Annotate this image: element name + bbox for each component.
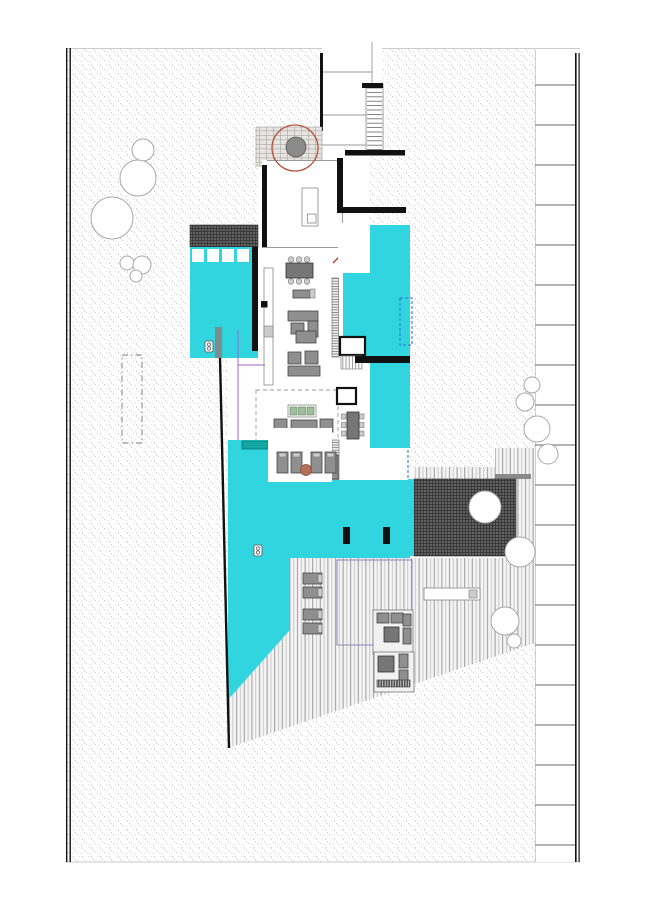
outdoor-dining-chair <box>342 414 347 419</box>
structural-column <box>261 301 268 308</box>
dining-chair <box>296 279 302 285</box>
set-b-table <box>378 656 394 672</box>
gravel-court <box>414 479 516 556</box>
outdoor-dining-chair <box>360 414 365 419</box>
mid-cross-wall <box>340 207 406 213</box>
set-a-seat-3 <box>403 614 411 626</box>
pool-skylight-1 <box>192 249 204 262</box>
set-a-coffee-table <box>384 627 399 642</box>
planter-box <box>337 388 356 404</box>
outdoor-dining-chair <box>360 423 365 428</box>
tree-east-1 <box>524 377 540 393</box>
north-wall-line <box>320 53 323 131</box>
tree-deck-2 <box>507 634 521 648</box>
terrace-pool-east <box>330 480 410 558</box>
pool-marker-2 <box>383 527 390 544</box>
outdoor-dining-chair <box>360 431 365 436</box>
tree-west-4 <box>120 256 134 270</box>
pool-marker-1 <box>343 527 350 544</box>
east-site-line-inner <box>575 53 577 862</box>
pool-skylight-4 <box>237 249 249 262</box>
pool-skylight-2 <box>207 249 219 262</box>
sofa-1-seat <box>288 311 318 321</box>
dining-chair <box>304 257 310 263</box>
hall-floor <box>343 156 370 208</box>
lounger-pillow <box>327 453 334 457</box>
stipple-top-block <box>165 48 322 130</box>
console-cell <box>299 407 306 415</box>
court-tree <box>286 137 306 157</box>
tv-bench <box>293 290 310 298</box>
pool-lane-marker <box>215 327 222 358</box>
console-cell <box>307 407 314 415</box>
tree-gravel-1 <box>469 491 501 523</box>
terrace-notch <box>338 223 370 273</box>
stipple-right-upper <box>370 155 535 225</box>
pool-step-bench <box>242 441 268 449</box>
tree-west-3 <box>91 197 133 239</box>
site-plan-drawing <box>0 0 650 912</box>
stipple-mid-left <box>165 358 228 862</box>
tree-east-3 <box>524 416 550 442</box>
stair-landing <box>340 337 365 355</box>
console-cell <box>290 407 297 415</box>
side-table-round <box>301 465 312 476</box>
pool-skylight-3 <box>222 249 234 262</box>
pool-edge-railing <box>332 278 339 357</box>
tree-west-2 <box>120 160 156 196</box>
west-site-line-inner <box>70 48 71 862</box>
south-cross-wall <box>355 356 410 363</box>
tree-west-6 <box>130 270 142 282</box>
sofa-2-chaise <box>305 351 318 364</box>
terrace-pool-south <box>228 558 290 630</box>
dining-table <box>286 263 313 278</box>
deck-lounger-pillow <box>318 589 322 597</box>
deck-lounger-pillow <box>318 575 322 583</box>
west-site-line-outer <box>66 48 67 862</box>
water-court-upper <box>370 225 410 273</box>
tree-west-1 <box>132 139 154 161</box>
water-court-lower <box>370 360 410 448</box>
dining-chair <box>288 257 294 263</box>
armchair-1 <box>296 331 316 343</box>
sofa-2-ottoman <box>288 352 301 364</box>
pool-upper <box>190 247 258 358</box>
outdoor-dining-table <box>347 412 359 439</box>
lounger-pillow <box>313 453 320 457</box>
stipple-top-right <box>382 48 535 152</box>
set-a-seat-1 <box>377 613 389 623</box>
dining-chair <box>288 279 294 285</box>
east-site-line-outer <box>579 53 580 862</box>
dining-chair <box>304 279 310 285</box>
entry-stair-top-bar <box>362 83 383 88</box>
tree-gravel-2 <box>505 537 535 567</box>
deck-gray-bar <box>495 474 531 479</box>
stipple-pool-left <box>165 248 190 358</box>
set-a-seat-4 <box>403 628 411 644</box>
kitchen-appliance <box>264 326 273 337</box>
deck-lounger-pillow <box>318 611 322 619</box>
outdoor-dining-chair <box>342 423 347 428</box>
pool-pergola <box>190 225 258 247</box>
set-b-seat-1 <box>399 654 408 668</box>
lounger-pillow <box>279 453 286 457</box>
bedroom-west-wall <box>262 165 267 248</box>
set-b-bench-hatch <box>377 680 410 687</box>
tree-east-4 <box>538 444 558 464</box>
tree-deck-1 <box>491 607 519 635</box>
tree-east-2 <box>516 393 534 411</box>
gravel-pool-strip <box>408 479 414 556</box>
outdoor-dining-chair <box>342 431 347 436</box>
north-cross-wall <box>345 150 405 156</box>
deck-strip-ne <box>495 448 535 467</box>
pool-east-wall <box>252 247 258 351</box>
dining-chair <box>296 257 302 263</box>
set-a-seat-2 <box>391 613 403 623</box>
stipple-right-mid <box>410 225 535 467</box>
tv-side-table <box>310 289 315 298</box>
deck-bench-detail <box>469 590 477 598</box>
lounger-pillow <box>293 453 300 457</box>
bedroom-east-wall <box>337 158 343 213</box>
sofa-2-seat <box>288 366 320 376</box>
deck-lounger-pillow <box>318 625 322 633</box>
bedroom-desk-chair <box>308 214 317 223</box>
site-plan <box>0 0 650 912</box>
